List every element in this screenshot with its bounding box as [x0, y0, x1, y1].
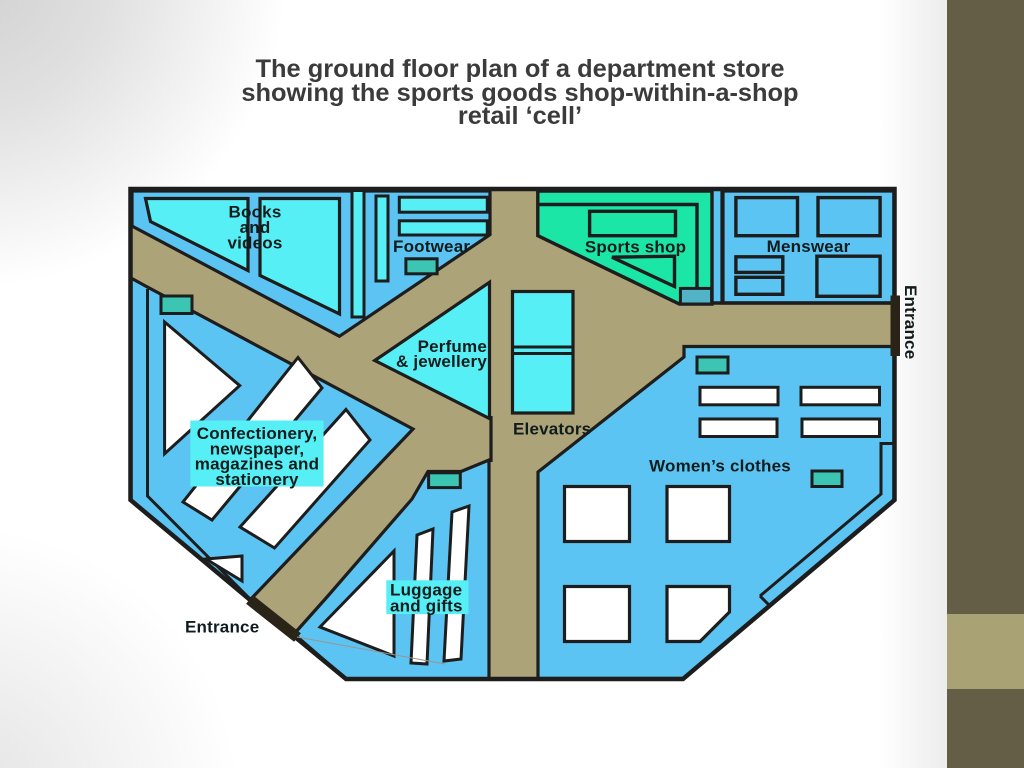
- svg-text:Sports shop: Sports shop: [585, 237, 686, 256]
- svg-text:Footwear: Footwear: [393, 237, 470, 256]
- svg-text:stationery: stationery: [215, 470, 299, 489]
- svg-text:Entrance: Entrance: [901, 285, 920, 359]
- svg-text:Menswear: Menswear: [767, 237, 851, 256]
- svg-text:Women’s clothes: Women’s clothes: [649, 457, 791, 476]
- svg-text:Elevators: Elevators: [513, 420, 591, 439]
- svg-text:& jewellery: & jewellery: [396, 352, 487, 371]
- svg-text:Entrance: Entrance: [185, 618, 259, 637]
- svg-text:videos: videos: [227, 234, 282, 253]
- svg-text:and gifts: and gifts: [390, 597, 463, 616]
